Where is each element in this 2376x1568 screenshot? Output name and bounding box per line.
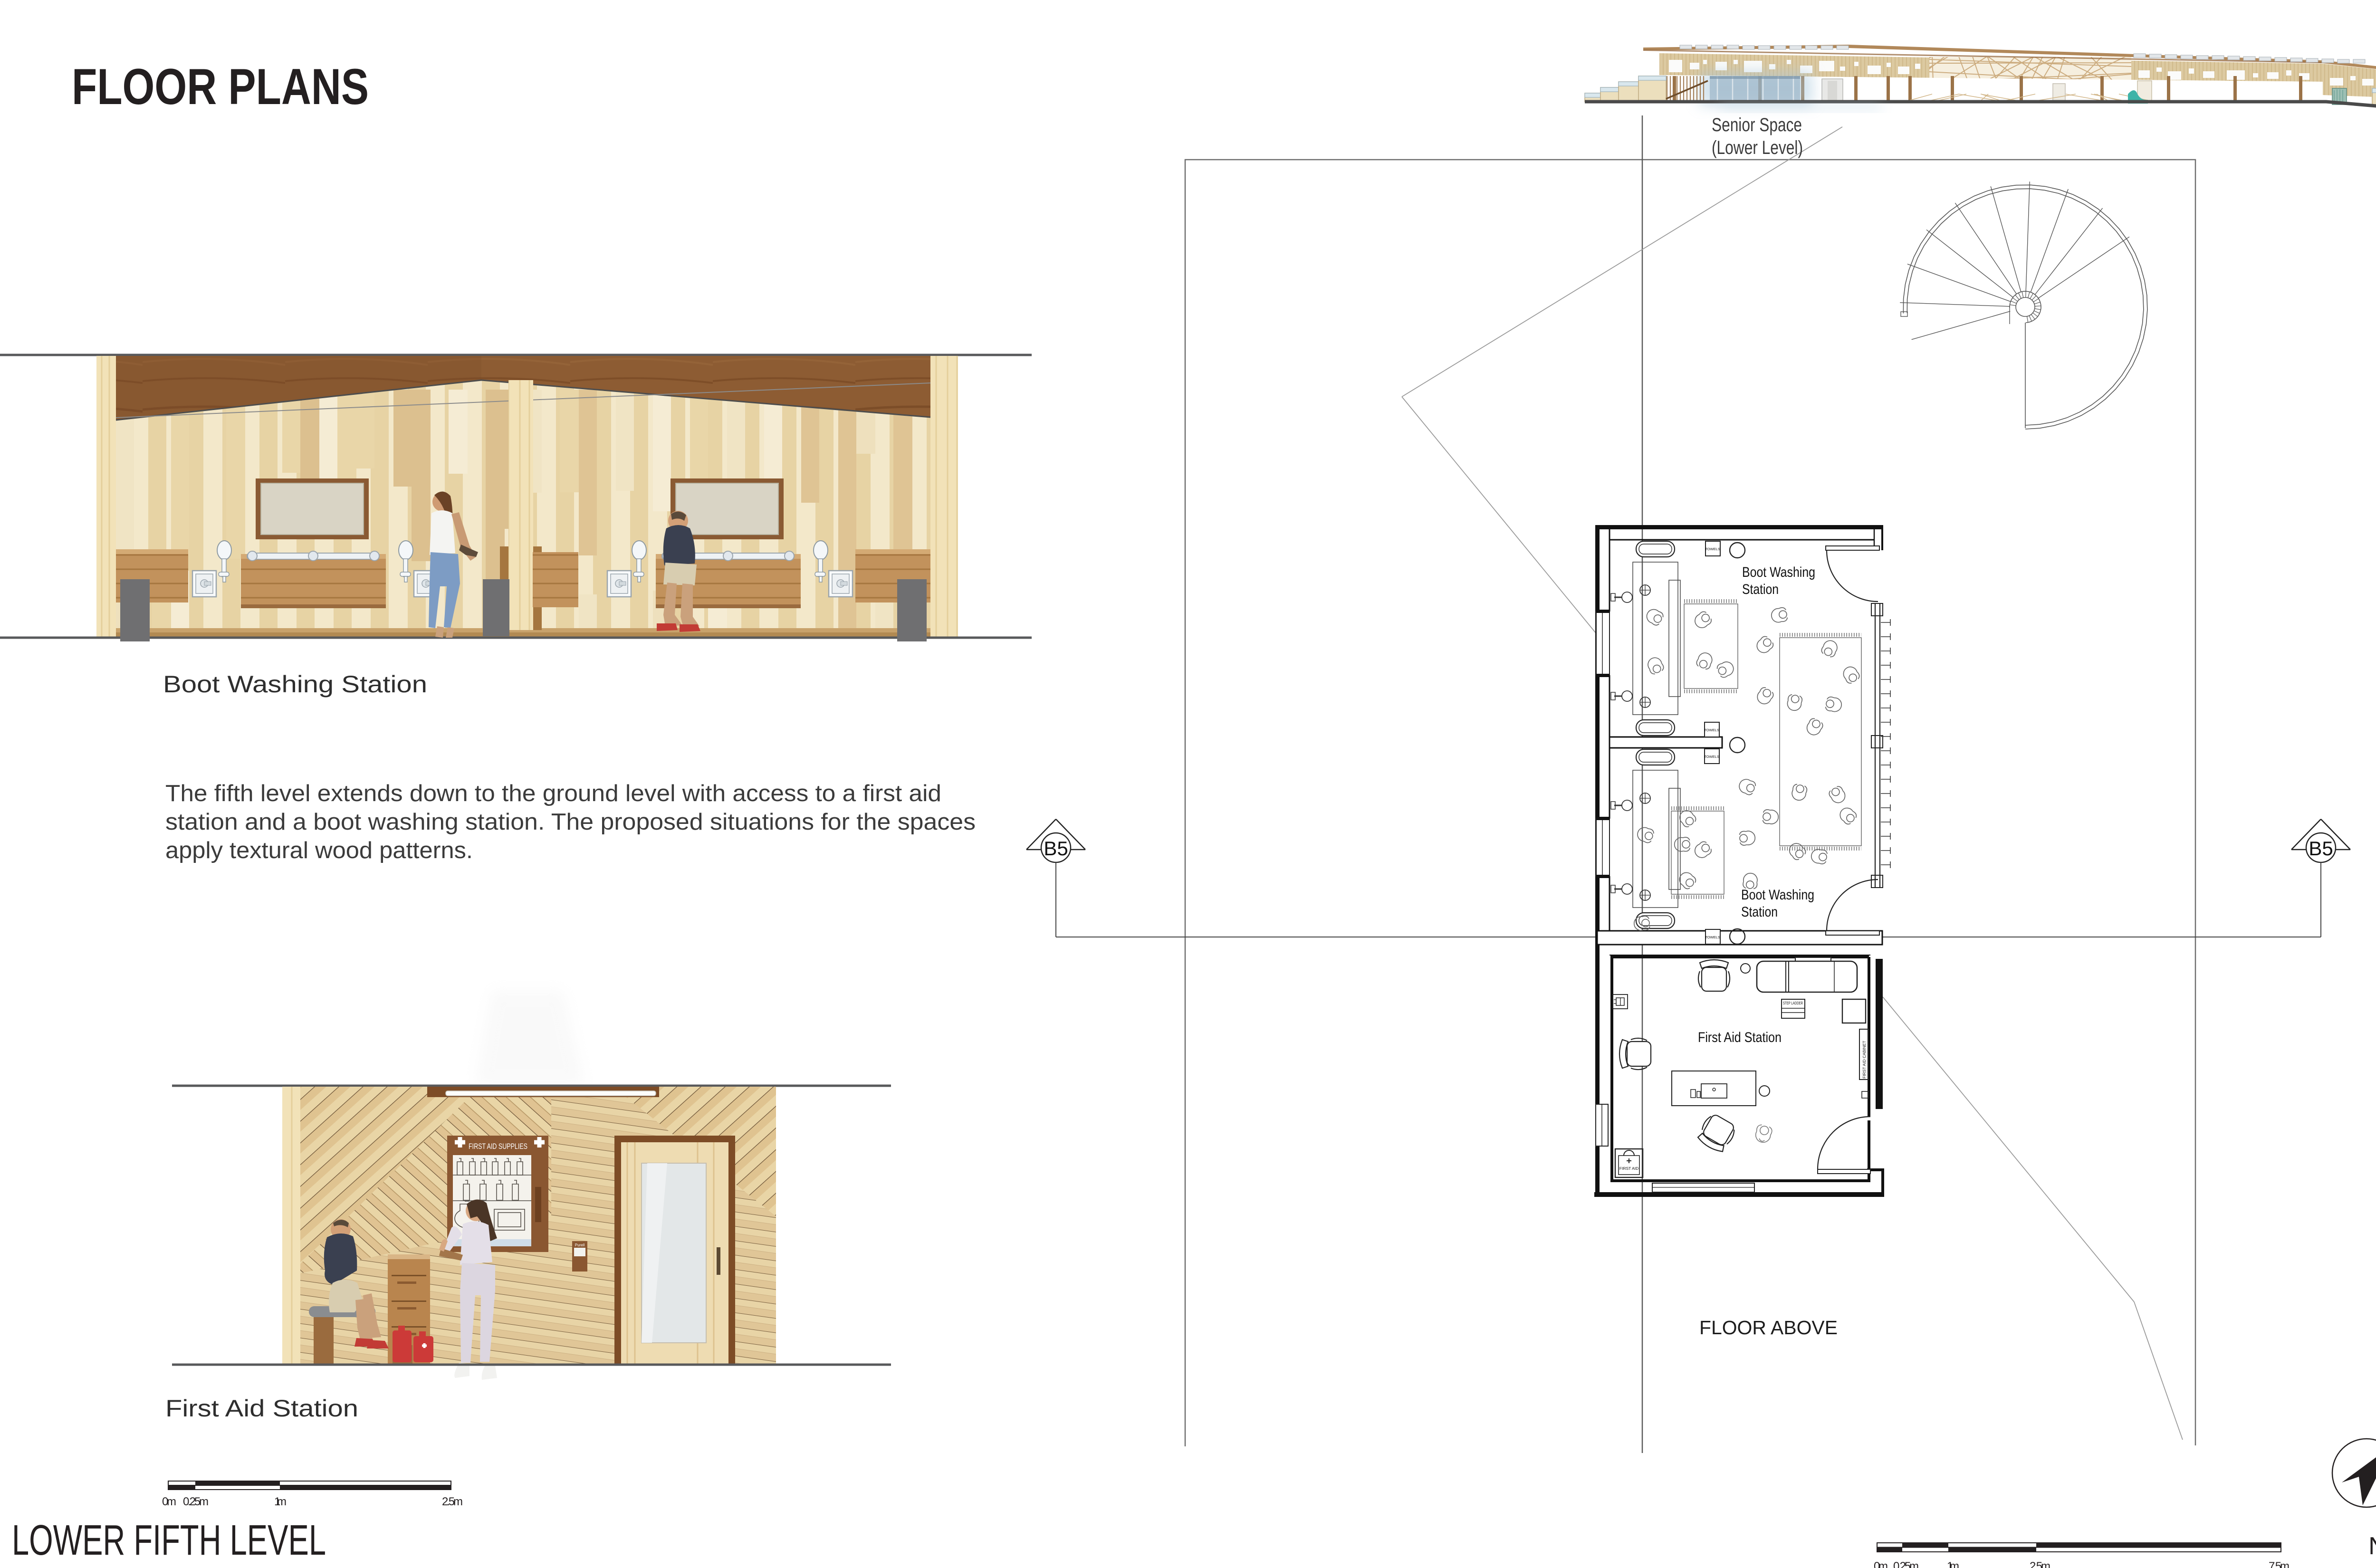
svg-text:TOWELS: TOWELS [1705, 935, 1720, 939]
svg-text:TOWELS: TOWELS [1704, 755, 1719, 759]
svg-text:7.5m: 7.5m [2269, 1560, 2290, 1568]
svg-text:First Aid Station: First Aid Station [1698, 1030, 1782, 1045]
svg-text:FLOOR ABOVE: FLOOR ABOVE [1699, 1317, 1838, 1339]
svg-text:1m: 1m [274, 1495, 287, 1508]
svg-text:0m: 0m [162, 1495, 176, 1508]
svg-text:apply textural wood patterns.: apply textural wood patterns. [165, 838, 473, 863]
svg-text:LOWER FIFTH LEVEL: LOWER FIFTH LEVEL [12, 1517, 326, 1564]
svg-text:B5: B5 [1044, 837, 1068, 860]
svg-text:Boot Washing Station: Boot Washing Station [163, 671, 427, 698]
svg-text:2.5m: 2.5m [2030, 1560, 2050, 1568]
svg-text:FIRST AID: FIRST AID [1619, 1166, 1638, 1171]
svg-text:N: N [2368, 1532, 2376, 1560]
svg-text:STEP LADDER: STEP LADDER [1783, 1001, 1803, 1005]
svg-text:0.25m: 0.25m [183, 1495, 209, 1508]
svg-text:Senior Space: Senior Space [1712, 115, 1802, 135]
svg-text:FIRST AID CABINET: FIRST AID CABINET [1862, 1041, 1867, 1079]
svg-text:0.25m: 0.25m [1893, 1560, 1919, 1568]
svg-text:2.5m: 2.5m [442, 1495, 463, 1508]
svg-text:(Lower Level): (Lower Level) [1712, 137, 1803, 158]
svg-text:The fifth level extends down t: The fifth level extends down to the grou… [165, 781, 941, 806]
svg-text:B5: B5 [2309, 837, 2333, 860]
svg-text:Boot Washing: Boot Washing [1742, 564, 1815, 580]
svg-text:Purell: Purell [575, 1243, 585, 1247]
svg-text:TOWELS: TOWELS [1704, 728, 1719, 732]
svg-text:Station: Station [1741, 904, 1778, 920]
svg-text:0m: 0m [1874, 1560, 1888, 1568]
svg-text:FLOOR PLANS: FLOOR PLANS [72, 58, 369, 115]
svg-text:Station: Station [1742, 582, 1779, 597]
svg-text:1m: 1m [1947, 1560, 1959, 1568]
svg-text:Boot Washing: Boot Washing [1741, 887, 1814, 903]
svg-text:station and a boot washing sta: station and a boot washing station. The … [165, 809, 976, 835]
svg-text:FIRST AID SUPPLIES: FIRST AID SUPPLIES [469, 1142, 527, 1151]
svg-text:First Aid Station: First Aid Station [165, 1395, 358, 1422]
svg-text:TOWELS: TOWELS [1705, 547, 1720, 551]
